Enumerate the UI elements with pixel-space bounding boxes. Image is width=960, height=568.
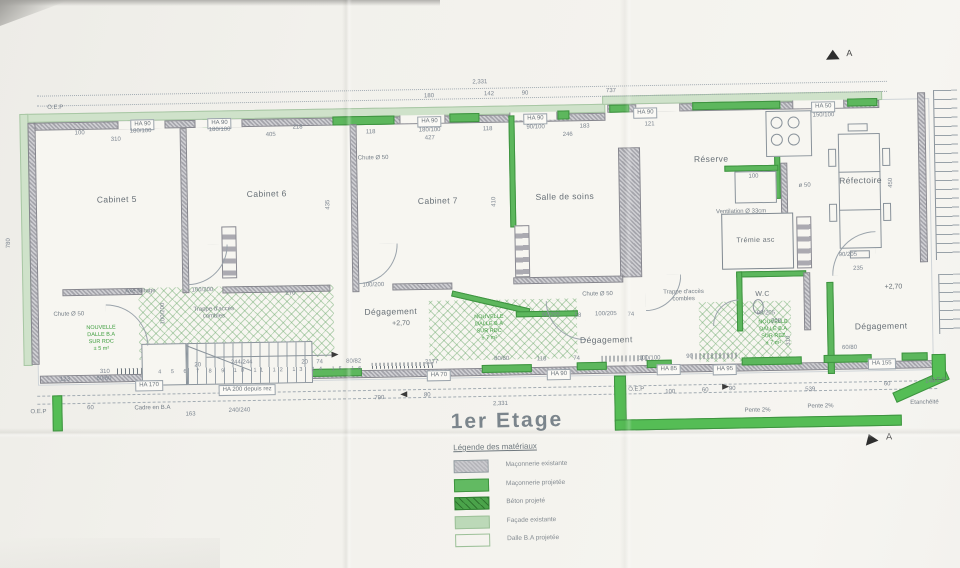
window-height-label: HA 200 depuis rez [219,384,276,396]
dimension-label: 539 [805,387,815,394]
dimension-label: 118 [483,126,493,133]
dimension-label: 80 [424,392,431,399]
existing-masonry-swatch [453,459,488,473]
dimension-label: 74 [316,359,323,366]
room-label: Trémie asc [736,237,774,246]
dimension-label: 218 [293,124,303,131]
dimension-label: 60/80 [842,345,857,352]
dimension-label: 100/200 [191,287,213,295]
note-label: O.E.P [47,105,63,112]
dimension-label: 150/100 [813,112,835,120]
level-label: +2,70 [885,283,903,292]
legend-item-label: Béton projeté [506,497,545,505]
note-label: Chute Ø 50 [53,311,84,319]
paper-corner-shadow [0,538,220,568]
room-label: Dégagement [855,320,908,331]
stair-numbers: 4 5 6 7 8 9 10 11 12 13 14 15 16 [158,366,365,376]
dimension-label: 74 [573,356,580,363]
dimension-label: 121 [645,121,655,128]
dimension-label: 100 [748,174,758,181]
dimension-label: 60 [884,381,891,388]
dimension-label: 163 [186,411,196,418]
window-height-label: HA 90 [547,369,572,380]
window-height-label: HA 95 [713,364,738,375]
dimension-label: 450 [888,178,895,188]
dimension-label: 310 [786,336,793,346]
note-label: Trappe d'accès combles [193,306,234,321]
dimension-label: 180/100 [209,127,231,135]
level-label: +2,70 [392,320,410,329]
legend-item-label: Maçonnerie existante [506,460,568,468]
dimension-label: 737 [606,88,616,95]
dimension-label: 180/100 [130,128,152,136]
photographed-floor-plan: A A Cabinet 5Cabinet 6Cabinet 7Salle de … [0,0,960,568]
room-label: Dégagement [364,306,417,317]
dimension-label: 90/205 [542,312,560,320]
dimension-label: 80/80 [494,356,509,363]
note-label: Chute Ø 50 [582,291,613,299]
note-label: Trappe d'accès combles [663,289,704,304]
existing-facade-swatch [455,515,490,529]
dimension-label: 780 [6,238,13,248]
dimension-label: 90 [729,386,736,393]
dimension-label: 118 [366,129,376,136]
note-label: Pente 2% [745,407,771,415]
legend-item-label: Maçonnerie projetée [506,478,565,486]
dimension-label: 2177 [425,359,438,366]
note-label: ø 50 [799,183,811,190]
section-marker-letter: A [846,48,852,59]
dimension-label: 435 [325,200,332,210]
dimension-label: 100/205 [595,311,617,319]
dimension-label: 60/60 [96,376,111,383]
dimension-label: 2,331 [472,79,487,86]
dimension-label: 2,331 [493,401,508,408]
dimension-label: 183 [580,123,590,130]
dimension-label: 246 [563,132,573,139]
green-note-label: NOUVELLE DALLE B.A SUR RDC ± 7 m² [474,314,504,342]
note-label: Cadre en B.A [134,405,170,413]
fold-crease [342,0,352,568]
dimension-label: 123 [60,377,70,384]
dimension-label: 142 [484,91,494,98]
dimension-label: 310 [111,137,121,144]
note-label: Chute Ø 50 [358,155,389,163]
dimension-label: 20 [301,359,308,366]
room-label: Salle de soins [535,191,594,202]
green-note-label: NOUVELLE DALLE B.A SUR RDC ± 5 m² [86,325,116,353]
room-label: W.C [755,291,770,300]
dimension-label: 100/200 [160,303,168,325]
dimension-label: 100/100 [639,355,661,363]
dimension-label: 90/100 [526,124,544,132]
legend-item-label: Façade existante [507,516,557,524]
dimension-label: 208 [771,318,781,325]
dimension-label: 90 [522,91,529,98]
note-label: Axe faîtage [125,288,155,296]
dimension-label: 270 [285,291,295,298]
dimension-label: 240/240 [229,407,251,415]
dimension-label: 118 [537,356,547,363]
fold-crease [620,0,632,568]
projected-concrete-swatch [454,496,489,510]
dimension-label: 235 [853,266,863,273]
dimension-label: 90 [686,354,693,361]
dimension-label: 60 [87,405,94,412]
dimension-label: 180/100 [419,127,441,135]
dimension-label: 410 [491,197,498,207]
dimension-label: 90/205 [757,310,775,318]
window-height-label: HA 85 [657,364,682,375]
dimension-label: 790 [374,395,384,402]
dimension-label: 427 [425,135,435,142]
window-height-label: HA 170 [135,380,163,391]
dimension-label: 140 [925,378,935,385]
dimension-label: 100 [665,389,675,396]
room-label: Réserve [694,154,729,165]
projected-slab-swatch [455,533,490,547]
window-height-label: HA 90 [633,107,658,118]
note-label: O.E.P [30,409,46,416]
window-height-label: HA 50 [811,101,836,112]
dimension-label: 100 [75,130,85,137]
dimension-label: 100/200 [362,282,384,290]
dimension-label: 58 [575,313,582,320]
fold-crease [0,428,960,438]
window-height-label: HA 90 [417,116,442,127]
dimension-label: 244/244 [231,359,253,367]
window-height-label: HA 155 [868,358,896,369]
dimension-label: 405 [266,132,276,139]
paper-corner-shadow [0,0,70,26]
room-label: Cabinet 7 [418,195,458,206]
room-label: Réfectoire [839,175,882,186]
window-height-label: HA 90 [523,113,548,124]
note-label: Ventilation Ø 33cm [716,208,766,216]
dimension-label: 180 [424,93,434,100]
dimension-label: 90/205 [839,252,857,260]
room-label: Cabinet 5 [97,194,137,205]
projected-masonry-swatch [454,478,489,492]
legend-item-label: Dalle B.A projetée [507,534,559,542]
note-label: Etanchéité [910,399,938,407]
legend-heading: Légende des matériaux [453,441,537,452]
window-height-label: HA 70 [427,370,452,381]
room-label: Cabinet 6 [247,188,287,199]
note-label: Pente 2% [807,403,833,411]
dimension-label: 60 [702,387,709,394]
